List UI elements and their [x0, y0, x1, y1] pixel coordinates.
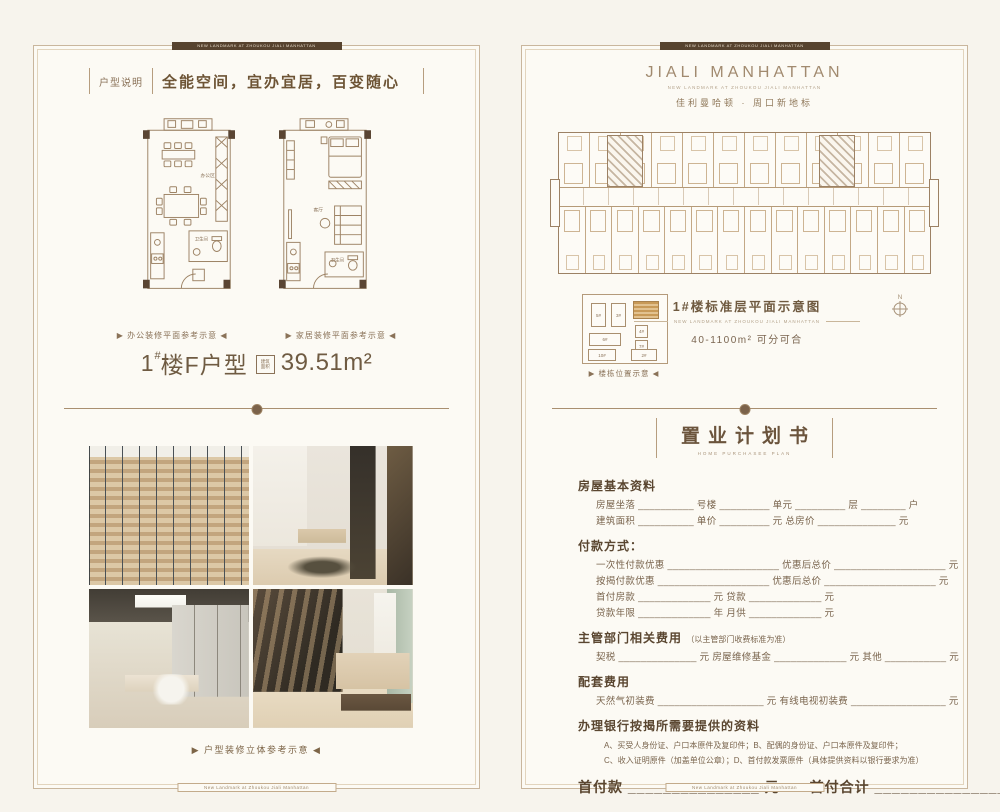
- home-floor-plan: 客厅 卫生间: [279, 116, 371, 294]
- office-plan-caption: ▶ 办公装修平面参考示意 ◀: [117, 330, 228, 341]
- unit-cell: [877, 207, 904, 273]
- brand-chinese: 佳利曼哈顿 · 周口新地标: [522, 96, 967, 109]
- form-title-block: 置业计划书 HOME PURCHASEE PLAN: [673, 421, 816, 456]
- top-brand-bar: NEW LANDMARK AT ZHOUKOU JIALI MANHATTAN: [660, 42, 830, 50]
- unit-cell: [611, 207, 638, 273]
- unit-title: 1 # 楼F户型 建筑 面积 39.51m²: [34, 346, 479, 380]
- form-subtitle: HOME PURCHASEE PLAN: [673, 451, 816, 456]
- section-heading-mortgage-docs: 办理银行按揭所需要提供的资料: [578, 717, 917, 734]
- form-note-row: A、买受人身份证、户口本原件及复印件；B、配偶的身份证、户口本原件及复印件；: [578, 738, 917, 753]
- unit-cell: [713, 133, 744, 187]
- room-label: 卫生间: [330, 257, 343, 264]
- plan-note-badge: 户型说明: [99, 74, 143, 89]
- unit-cell: [744, 207, 771, 273]
- unit-cell: [868, 133, 899, 187]
- compass-north-label: N: [888, 294, 912, 301]
- left-page: NEW LANDMARK AT ZHOUKOU JIALI MANHATTAN …: [33, 45, 480, 789]
- brand-subtitle: NEW LANDMARK AT ZHOUKOU JIALI MANHATTAN: [522, 85, 967, 90]
- west-wing-extension: [550, 179, 560, 227]
- unit-cell: [651, 133, 682, 187]
- plan-caption-block: 1#楼标准层平面示意图 NEW LANDMARK AT ZHOUKOU JIAL…: [632, 296, 862, 346]
- meeting-room-photo: [89, 589, 249, 728]
- site-block: 5#: [591, 303, 606, 327]
- section-divider: [64, 408, 449, 409]
- form-row: 契税 ______________ 元 房屋维修基金 _____________…: [578, 650, 917, 666]
- form-row: 贷款年限 _____________ 年 月供 _____________ 元: [578, 606, 917, 622]
- building-standard-floor-plan: [558, 132, 931, 274]
- area-value: 39.51m²: [281, 349, 373, 377]
- unit-cell: [899, 133, 930, 187]
- site-block: 10#: [588, 349, 616, 361]
- divider-medallion-icon: [739, 404, 750, 415]
- unit-cell: [904, 207, 931, 273]
- unit-cell: [638, 207, 665, 273]
- form-row: 房屋坐落 __________ 号楼 _________ 单元 ________…: [578, 498, 917, 514]
- unit-cell: [744, 133, 775, 187]
- form-header: 置业计划书 HOME PURCHASEE PLAN: [522, 418, 967, 458]
- section-heading-authority-fees: 主管部门相关费用 （以主管部门收费标准为准）: [578, 629, 917, 646]
- form-row: 按揭付款优惠 ____________________ 优惠后总价 ______…: [578, 574, 917, 590]
- unit-cell: [559, 207, 585, 273]
- plan-caption-subtitle: NEW LANDMARK AT ZHOUKOU JIALI MANHATTAN: [632, 319, 862, 324]
- floor-plans: 办公区 卫生间: [34, 116, 479, 294]
- section-heading-payment: 付款方式：: [578, 537, 917, 554]
- unit-cell: [691, 207, 718, 273]
- compass-glyph: [892, 301, 908, 317]
- plan-captions: ▶ 办公装修平面参考示意 ◀ ▶ 家居装修平面参考示意 ◀: [34, 330, 479, 341]
- unit-cell: [797, 207, 824, 273]
- plan-corridor: [559, 188, 930, 205]
- stair-core-icon: [607, 135, 643, 187]
- top-brand-bar: NEW LANDMARK AT ZHOUKOU JIALI MANHATTAN: [172, 42, 342, 50]
- office-floor-plan: 办公区 卫生间: [143, 116, 235, 294]
- unit-cell: [585, 207, 612, 273]
- room-label: 办公区: [200, 172, 215, 179]
- north-compass-icon: N: [888, 294, 912, 322]
- divider-bar: [152, 68, 153, 94]
- home-plan-caption: ▶ 家居装修平面参考示意 ◀: [286, 330, 397, 341]
- divider-bar: [89, 68, 90, 94]
- purchase-plan-form: 房屋基本资料 房屋坐落 __________ 号楼 _________ 单元 _…: [578, 470, 917, 812]
- area-range-text: 40-1100m² 可分可合: [632, 331, 862, 346]
- bedroom-photo: [253, 589, 413, 728]
- plan-caption-title: 1#楼标准层平面示意图: [632, 296, 862, 315]
- unit-cell: [850, 207, 877, 273]
- photos-caption: ▶ 户型装修立体参考示意 ◀: [34, 743, 479, 756]
- slogan-text: 全能空间，宜办宜居，百变随心: [162, 71, 400, 92]
- form-row: 一次性付款优惠 ____________________ 优惠后总价 _____…: [578, 558, 917, 574]
- heading-text: 主管部门相关费用: [578, 631, 682, 645]
- divider-bar: [423, 68, 424, 94]
- section-heading-supporting-fees: 配套费用: [578, 673, 917, 690]
- divider-medallion-icon: [251, 404, 262, 415]
- section-heading-basic-info: 房屋基本资料: [578, 477, 917, 494]
- section-divider: [552, 408, 937, 409]
- room-label: 客厅: [313, 207, 323, 214]
- unit-cell: [824, 207, 851, 273]
- site-block: 6#: [589, 333, 621, 346]
- brochure-canvas: NEW LANDMARK AT ZHOUKOU JIALI MANHATTAN …: [0, 0, 1000, 812]
- form-row: 首付房款 _____________ 元 贷款 _____________ 元: [578, 590, 917, 606]
- right-page: NEW LANDMARK AT ZHOUKOU JIALI MANHATTAN …: [521, 45, 968, 789]
- unit-cell: [717, 207, 744, 273]
- unit-cell: [682, 133, 713, 187]
- unit-cell: [664, 207, 691, 273]
- plan-bottom-units: [559, 206, 930, 273]
- brand-block: JIALI MANHATTAN NEW LANDMARK AT ZHOUKOU …: [522, 64, 967, 109]
- divider-bar: [656, 418, 657, 458]
- unit-number-hash: #: [155, 350, 161, 362]
- site-map-caption: ▶ 楼栋位置示意 ◀: [558, 368, 690, 379]
- left-header: 户型说明 全能空间，宜办宜居，百变随心: [34, 68, 479, 94]
- east-wing-extension: [929, 179, 939, 227]
- stair-core-icon: [819, 135, 855, 187]
- area-label-box: 建筑 面积: [256, 355, 275, 374]
- office-reception-photo: [89, 446, 249, 585]
- interior-photo-grid: [89, 446, 413, 728]
- unit-cell: [775, 133, 806, 187]
- site-block: 3#: [611, 303, 626, 327]
- form-row: 建筑面积 __________ 单价 _________ 元 总房价 _____…: [578, 514, 917, 530]
- bottom-brand-caption: New Landmark at Zhoukou Jiali Manhattan: [665, 783, 824, 792]
- unit-number: 1: [141, 350, 155, 377]
- heading-note: （以主管部门收费标准为准）: [686, 635, 790, 644]
- unit-type-text: 楼F户型: [161, 346, 248, 380]
- study-room-photo: [253, 446, 413, 585]
- divider-bar: [832, 418, 833, 458]
- bottom-brand-caption: New Landmark at Zhoukou Jiali Manhattan: [177, 783, 336, 792]
- form-note-row: C、收入证明原件（加盖单位公章）；D、首付款发票原件（具体提供资料以银行要求为准…: [578, 753, 917, 768]
- form-row: 天然气初装费 ___________________ 元 有线电视初装费 ___…: [578, 694, 917, 710]
- site-block: 2#: [631, 349, 657, 361]
- unit-cell: [559, 133, 589, 187]
- unit-cell: [771, 207, 798, 273]
- brand-title: JIALI MANHATTAN: [522, 64, 967, 82]
- room-label: 卫生间: [194, 235, 207, 242]
- area-label-line2: 面积: [261, 364, 270, 370]
- form-title: 置业计划书: [673, 421, 816, 448]
